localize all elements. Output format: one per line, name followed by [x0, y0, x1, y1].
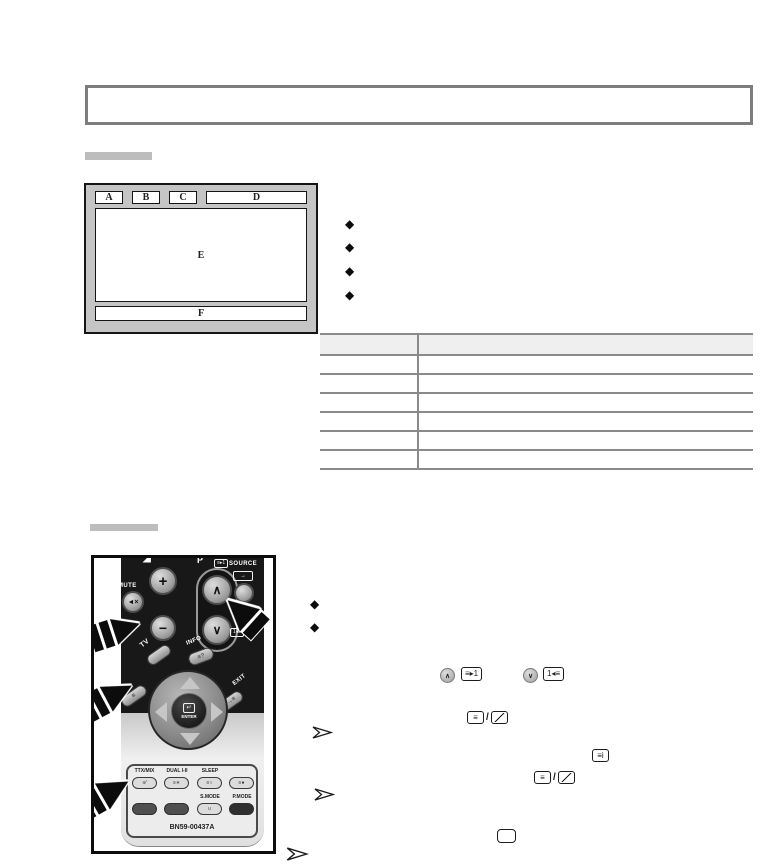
teletext-lines-icon: ≡: [534, 771, 551, 784]
table-row: [320, 394, 753, 413]
volume-down-button: −: [150, 615, 176, 641]
section-heading-bar: [85, 152, 152, 160]
info-teletext-icon: ≡?: [197, 653, 205, 661]
chevron-up-icon: ∧: [213, 583, 222, 597]
teletext-prev-page-icon: 1◂≡: [543, 667, 564, 681]
teletext-mix-icon-group: ≡ /: [534, 771, 575, 784]
diagram-box-f: F: [95, 306, 307, 321]
teletext-parts-table: [320, 333, 753, 470]
enter-return-icon: ↵: [183, 703, 194, 713]
p-mode-button: [229, 803, 254, 815]
plus-icon: +: [159, 573, 168, 590]
slash-separator: /: [553, 772, 556, 783]
enter-button: ↵ ENTER: [171, 693, 207, 729]
teletext-mix-icon-group: ≡ /: [467, 711, 508, 724]
teletext-mix-icon: [558, 771, 575, 784]
table-row: [320, 413, 753, 432]
remote-model-number: BN59-00437A: [128, 824, 256, 831]
mute-button: ◄×: [122, 591, 144, 613]
page-down-circle-icon: ∨: [523, 668, 538, 683]
table-row: [320, 451, 753, 470]
teletext-next-page-icon: ≡▸1: [214, 559, 228, 568]
note-arrow-icon: [311, 726, 333, 739]
mute-label: MUTE: [118, 583, 137, 589]
page-up-circle-icon: ∧: [440, 668, 455, 683]
minus-icon: −: [159, 620, 167, 636]
source-arrow-icon: →: [233, 571, 253, 581]
bullet-diamond-icon: ◆: [345, 289, 354, 301]
diagram-box-c: C: [169, 191, 197, 204]
enter-label: ENTER: [181, 714, 196, 719]
bullet-diamond-icon: ◆: [345, 265, 354, 277]
fourth-function-icon: ≡●: [239, 780, 245, 786]
note-arrow-icon: [313, 788, 335, 801]
s-mode-button: ∪: [197, 803, 222, 815]
p-mode-label: P.MODE: [229, 795, 255, 800]
dpad-up-icon: [180, 677, 200, 689]
ttx-mix-label: TTX/MIX: [131, 769, 158, 774]
chevron-down-icon: ∨: [213, 623, 222, 637]
mix-diagonal-glyph: [493, 713, 506, 722]
note-arrow-icon: [285, 847, 309, 861]
diagram-label-c: C: [179, 192, 186, 203]
chevron-down-icon: ∨: [528, 672, 533, 680]
menu-label: MENU: [98, 661, 117, 678]
diagram-box-e: E: [95, 208, 307, 302]
bullet-diamond-icon: ◆: [310, 621, 319, 633]
dual-button-icon: ≡∗: [173, 780, 180, 786]
diagram-label-a: A: [105, 192, 112, 203]
dpad-down-icon: [180, 733, 200, 745]
index-glyph: ≡i: [597, 752, 603, 760]
diagram-label-b: B: [143, 192, 150, 203]
dual-button: ≡∗: [164, 777, 189, 789]
sleep-button: ≡○: [197, 777, 222, 789]
table-column-divider: [417, 333, 419, 469]
diagram-label-f: F: [198, 308, 204, 319]
bullet-diamond-icon: ◆: [345, 218, 354, 230]
table-header-row: [320, 333, 753, 356]
sleep-button-icon: ≡○: [207, 780, 213, 786]
mute-speaker-icon: ◄×: [127, 599, 138, 606]
dpad-right-icon: [211, 702, 223, 722]
teletext-lines-icon: ≡: [467, 711, 484, 724]
diagram-box-d: D: [206, 191, 307, 204]
bullet-diamond-icon: ◆: [345, 241, 354, 253]
diagram-box-a: A: [95, 191, 123, 204]
sleep-label: SLEEP: [197, 769, 223, 774]
directional-pad: ↵ ENTER: [148, 670, 228, 750]
ttx-mix-button-icon: ≡⁄: [143, 780, 147, 786]
color-function-button: [132, 803, 157, 815]
remote-control-figure: ◢ + − MUTE ◄× P ≡▸1 ∧ ∨ 1◂≡ SOURCE → TV …: [91, 555, 276, 854]
lines-glyph: ≡: [473, 714, 478, 722]
teletext-next-page-icon: ≡▸1: [461, 667, 482, 681]
table-row: [320, 375, 753, 394]
mix-diagonal-glyph: [560, 773, 573, 782]
diagram-label-e: E: [198, 250, 205, 261]
s-mode-icon: ∪: [208, 806, 212, 812]
prev-page-glyph: 1◂≡: [547, 670, 560, 678]
diagram-box-b: B: [132, 191, 160, 204]
volume-wedge-icon: ◢: [143, 555, 151, 564]
dual-label: DUAL I-II: [163, 769, 191, 774]
lines-glyph: ≡: [540, 774, 545, 782]
teletext-index-icon: ≡i: [592, 749, 609, 762]
diagram-header-row: A B C D: [95, 191, 307, 204]
title-box: [85, 85, 753, 125]
teletext-hold-icon: [497, 829, 516, 843]
channel-p-label: P: [197, 556, 203, 565]
source-label: SOURCE: [229, 561, 257, 567]
dpad-left-icon: [155, 702, 167, 722]
volume-up-button: +: [149, 567, 177, 595]
color-function-button: [164, 803, 189, 815]
function-button-panel: TTX/MIX DUAL I-II SLEEP ≡⁄ ≡∗ ≡○ ≡● S.MO…: [126, 764, 258, 838]
s-mode-label: S.MODE: [197, 795, 223, 800]
next-page-glyph: ≡▸1: [465, 670, 478, 678]
chevron-up-icon: ∧: [445, 672, 450, 680]
slash-separator: /: [486, 712, 489, 723]
teletext-screen-diagram: A B C D E F: [84, 183, 318, 334]
table-row: [320, 432, 753, 451]
bullet-diamond-icon: ◆: [310, 598, 319, 610]
ttx-mix-button: ≡⁄: [132, 777, 157, 789]
fourth-function-button: ≡●: [229, 777, 254, 789]
diagram-label-d: D: [253, 192, 260, 203]
section-heading-bar: [90, 524, 158, 531]
teletext-mix-icon: [491, 711, 508, 724]
table-row: [320, 356, 753, 375]
